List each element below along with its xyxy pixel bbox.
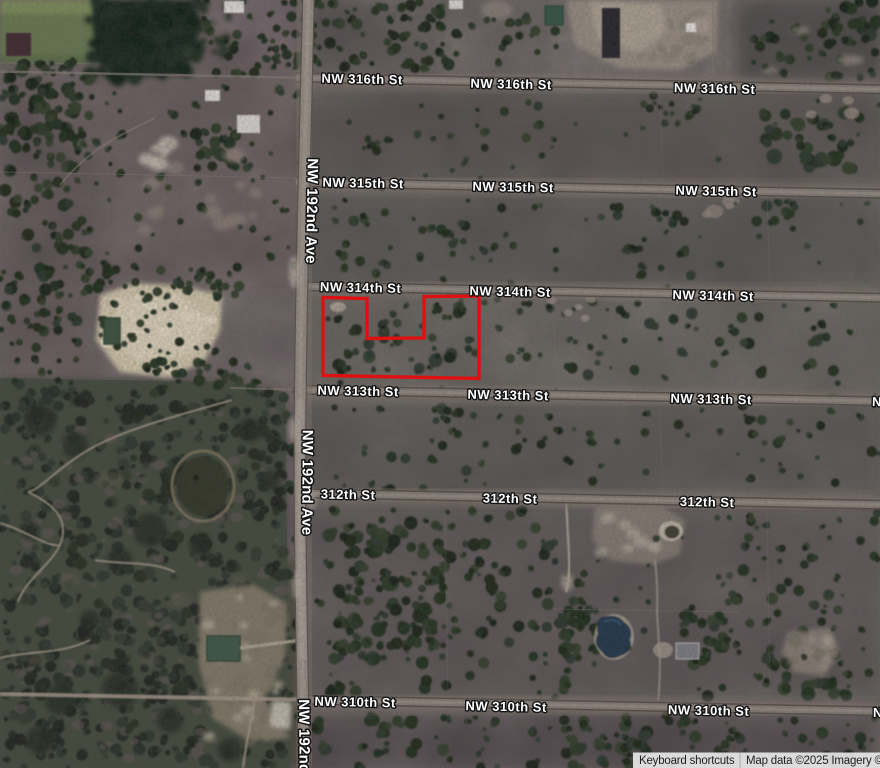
svg-text:NW 316th St: NW 316th St (674, 80, 756, 97)
svg-text:N: N (873, 705, 880, 720)
svg-text:NW 316th St: NW 316th St (321, 71, 403, 88)
svg-text:NW 310th St: NW 310th St (465, 698, 547, 715)
svg-text:NW 3: NW 3 (872, 394, 880, 410)
svg-text:Keyboard shortcuts: Keyboard shortcuts (639, 755, 735, 767)
svg-text:NW 310th St: NW 310th St (668, 702, 750, 719)
svg-text:NW 310th St: NW 310th St (314, 694, 396, 711)
svg-text:NW 192nd Ave: NW 192nd Ave (295, 699, 313, 768)
svg-text:Map data ©2025 Imagery ©20: Map data ©2025 Imagery ©20 (746, 755, 880, 767)
svg-text:NW 192nd Ave: NW 192nd Ave (298, 430, 316, 536)
svg-text:NW 313th St: NW 313th St (467, 387, 549, 404)
svg-text:NW 315th St: NW 315th St (472, 179, 554, 196)
svg-text:NW 314th St: NW 314th St (672, 287, 754, 304)
svg-text:NW 314th St: NW 314th St (469, 283, 551, 300)
svg-text:NW 313th St: NW 313th St (670, 391, 752, 408)
svg-text:312th St: 312th St (321, 486, 376, 502)
svg-text:NW 313th St: NW 313th St (317, 383, 399, 400)
svg-text:312th St: 312th St (680, 494, 735, 510)
svg-text:NW 314th St: NW 314th St (320, 279, 402, 296)
svg-text:NW 192nd Ave: NW 192nd Ave (302, 158, 321, 264)
svg-text:NW 315th St: NW 315th St (322, 175, 404, 192)
svg-text:NW 316th St: NW 316th St (470, 76, 552, 93)
svg-text:312th St: 312th St (483, 490, 538, 506)
svg-text:NW 315th St: NW 315th St (675, 183, 757, 200)
